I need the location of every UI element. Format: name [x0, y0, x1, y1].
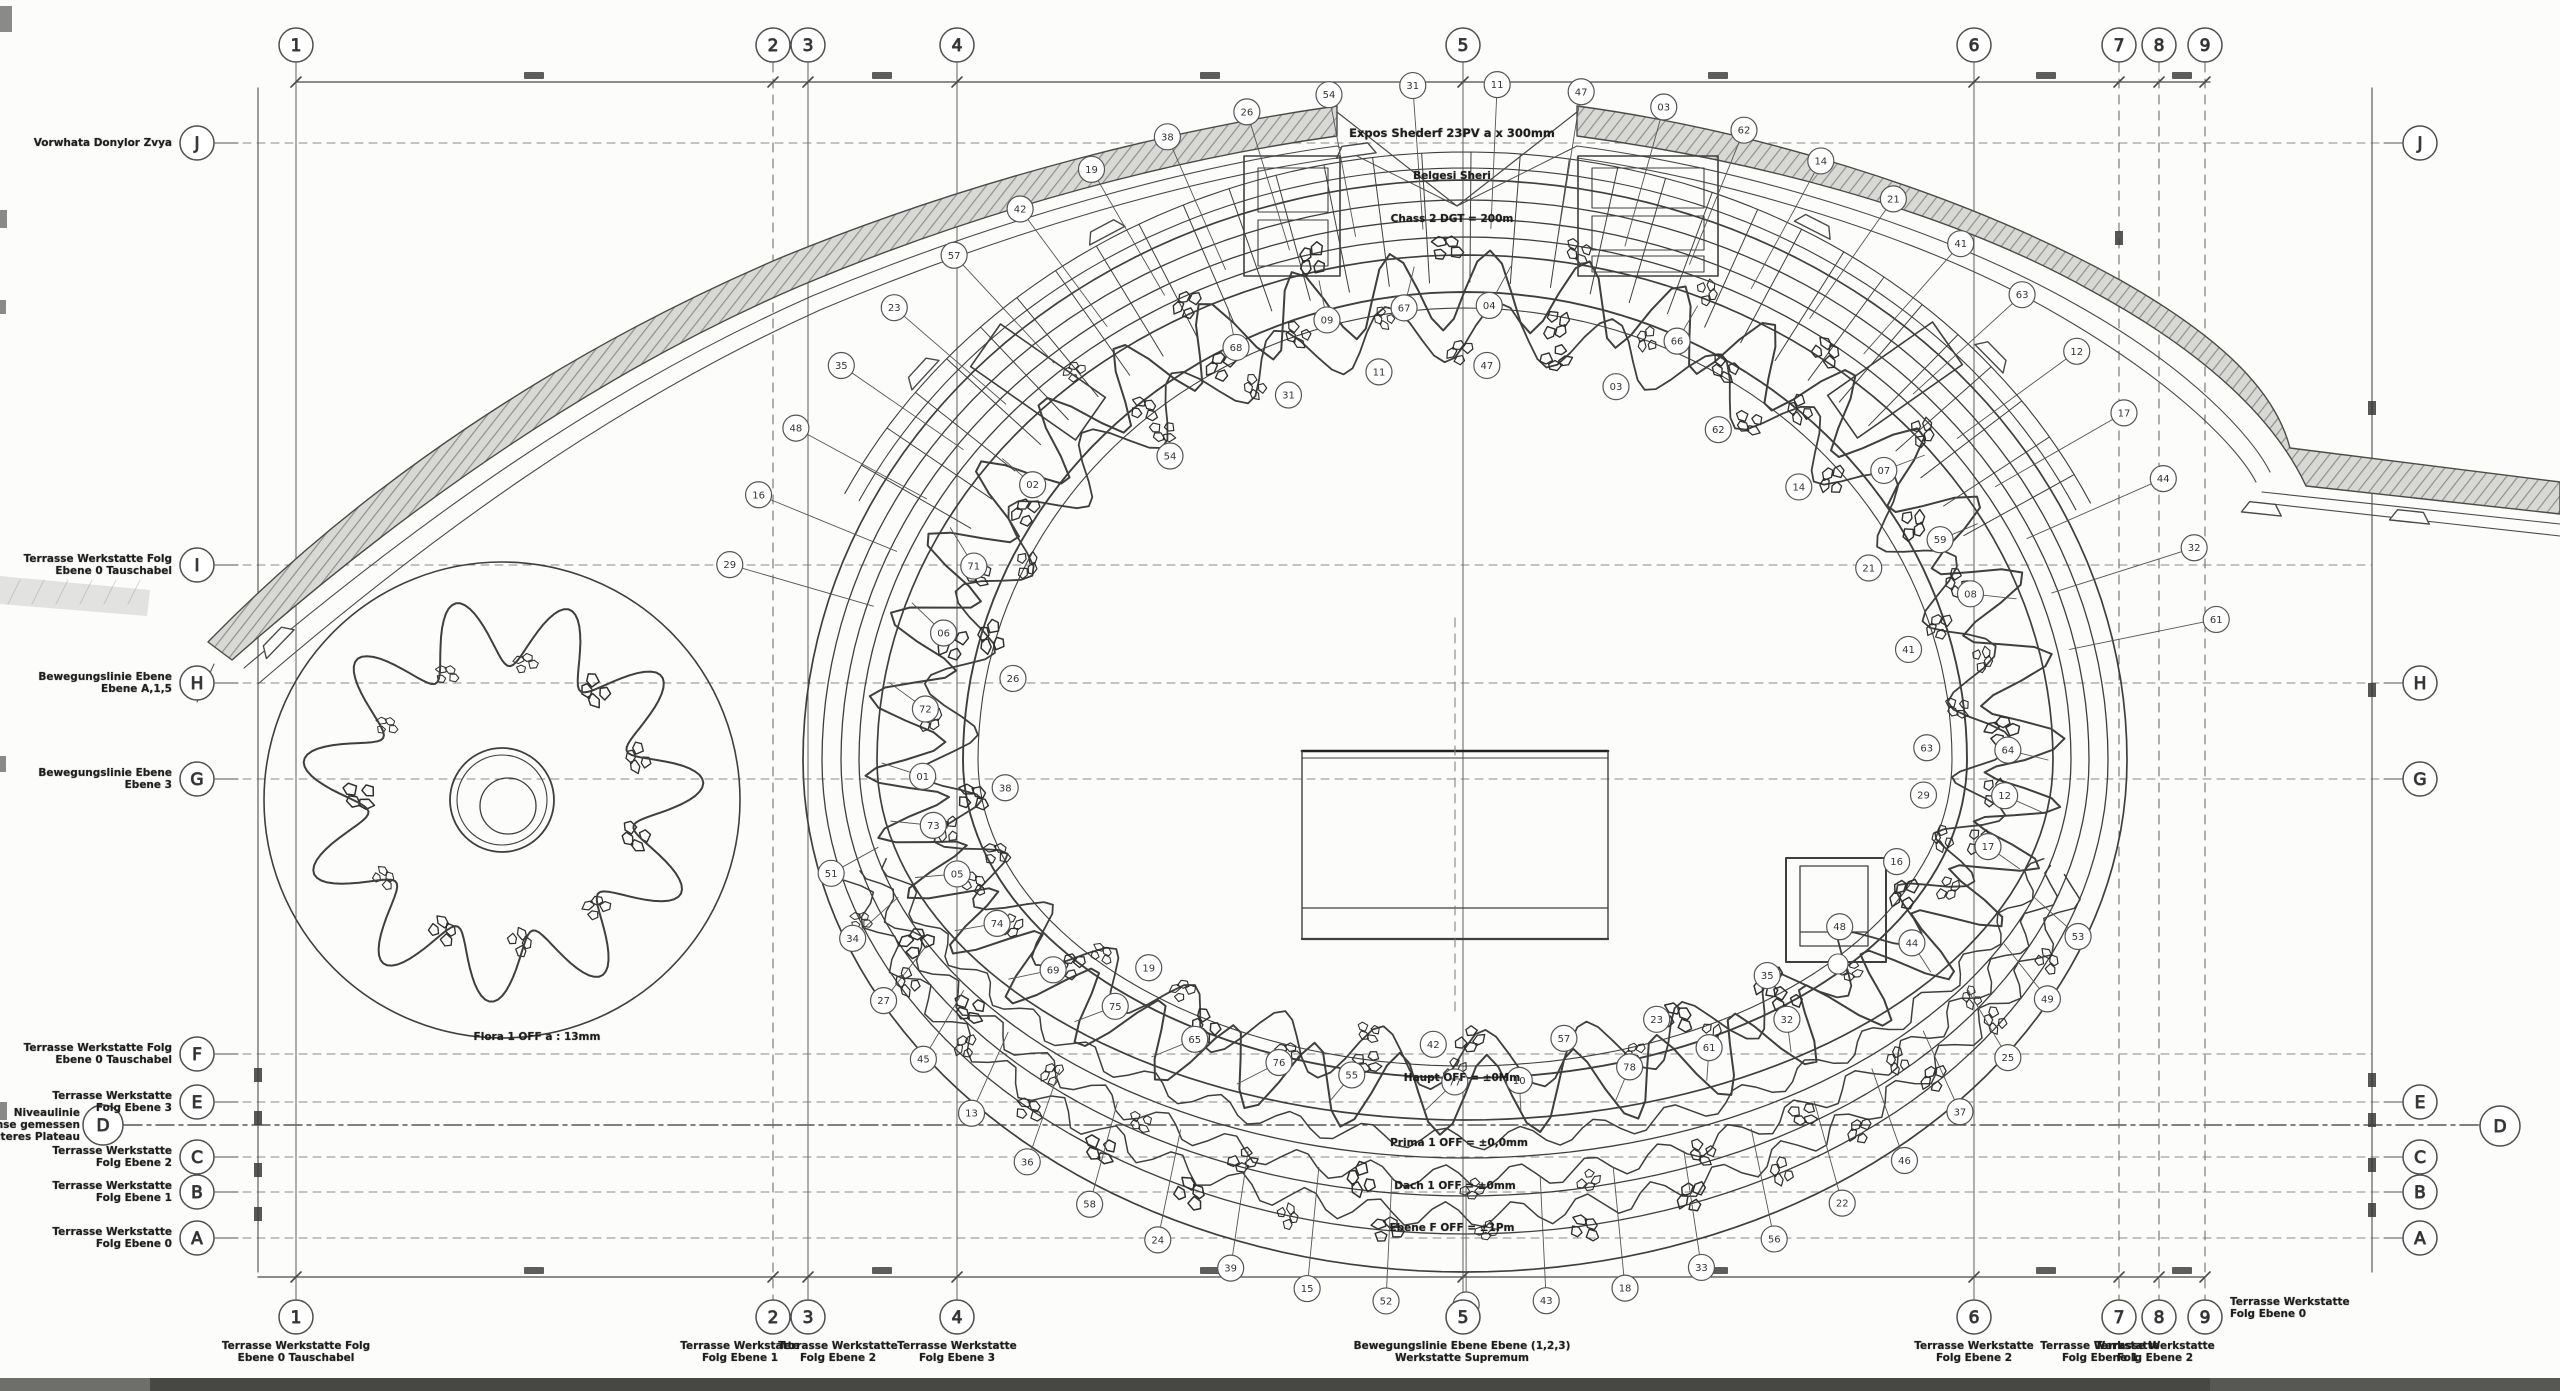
- callout-number: 19: [1085, 165, 1098, 176]
- row-label-C: Terrasse Werkstatte Folg Ebene 2: [52, 1145, 172, 1169]
- canopy-tab: [1335, 142, 1376, 158]
- radial-divider: [1896, 367, 1991, 451]
- callout-number: 61: [2210, 615, 2223, 626]
- callout-number: 58: [1083, 1200, 1096, 1211]
- dimension-text-smudge: [1200, 72, 1220, 79]
- callout-number: 41: [1902, 645, 1915, 656]
- callout-leader: [1307, 1167, 1319, 1288]
- tree-sketch: [1983, 1006, 2008, 1036]
- row-label-B: Terrasse Werkstatte Folg Ebene 1: [52, 1180, 172, 1204]
- top-annotation-2: Belgesi Sheri: [1413, 170, 1491, 182]
- dimension-text-smudge: [872, 72, 892, 79]
- tree-sketch: [1241, 371, 1269, 402]
- tree-sketch: [431, 660, 462, 689]
- callout-number: 56: [1768, 1234, 1781, 1245]
- callout-number: 03: [1610, 382, 1623, 393]
- grid-bubble-label-3: 3: [803, 1308, 814, 1328]
- callout-number: 62: [1712, 425, 1725, 436]
- callout-leader: [1231, 1152, 1248, 1269]
- callout-number: 46: [1898, 1156, 1911, 1167]
- callout-number: 24: [1151, 1235, 1164, 1246]
- grid-bubble-label-G: G: [190, 770, 203, 790]
- scan-footer-segment: [0, 1378, 150, 1391]
- callout-number: 22: [1836, 1199, 1849, 1210]
- tree-sketch: [579, 671, 612, 710]
- tree-sketch: [948, 986, 992, 1031]
- column-footnote-3: Terrasse Werkstatte Folg Ebene 2: [778, 1340, 898, 1364]
- callout-bubble: [1828, 954, 1848, 974]
- tree-sketch: [1535, 304, 1577, 346]
- dimension-text-smudge: [1200, 1267, 1220, 1274]
- callout-number: 23: [888, 303, 901, 314]
- callout-number: 54: [1164, 452, 1177, 463]
- callout-number: 71: [967, 562, 980, 573]
- scan-footer-band: [0, 1378, 2560, 1391]
- tree-sketch: [1941, 690, 1975, 724]
- callout-number: 21: [1887, 194, 1900, 205]
- callout-number: 55: [1345, 1070, 1358, 1081]
- canopy-tab: [1975, 337, 2011, 373]
- callout-number: 44: [1906, 938, 1919, 949]
- survey-tick-block: [254, 1207, 262, 1221]
- column-footnote-6: Terrasse Werkstatte Folg Ebene 2: [1914, 1340, 2034, 1364]
- callout-leader: [1158, 1130, 1181, 1240]
- grid-bubble-label-9: 9: [2200, 1308, 2211, 1328]
- callout-leader: [2027, 479, 2163, 539]
- top-annotation-3: Chass 2 DGT = 200m: [1391, 213, 1514, 225]
- callout-leader: [1995, 413, 2124, 487]
- callout-number: 14: [1792, 482, 1805, 493]
- callout-number: 06: [937, 628, 950, 639]
- callout-number: 78: [1623, 1062, 1636, 1073]
- grid-bubble-label-4: 4: [952, 1308, 963, 1328]
- dimension-text-smudge: [1708, 72, 1728, 79]
- survey-tick-block: [254, 1068, 262, 1082]
- dimension-text-smudge: [2172, 72, 2192, 79]
- grid-bubble-label-H: H: [2414, 674, 2427, 694]
- callout-number: 35: [1761, 971, 1774, 982]
- grid-bubble-label-9: 9: [2200, 36, 2211, 56]
- dimension-text-smudge: [872, 1267, 892, 1274]
- footnote-right-of-9: Terrasse Werkstatte Folg Ebene 0: [2230, 1296, 2350, 1320]
- callout-number: 53: [2072, 932, 2085, 943]
- callout-number: 02: [1026, 480, 1039, 491]
- grid-bubble-label-5: 5: [1458, 36, 1469, 56]
- grid-bubble-label-E: E: [192, 1093, 203, 1113]
- callout-number: 61: [1703, 1043, 1716, 1054]
- callout-number: 14: [1814, 156, 1827, 167]
- grid-bubble-label-1: 1: [291, 36, 302, 56]
- tree-sketch: [1345, 1160, 1378, 1199]
- survey-tick-block: [2368, 1203, 2376, 1217]
- tree-sketch: [1769, 1156, 1795, 1187]
- dimension-lines: [258, 72, 2210, 1282]
- survey-tick-block: [2368, 683, 2376, 697]
- row-label-I: Terrasse Werkstatte Folg Ebene 0 Tauscha…: [24, 553, 172, 577]
- plaza-core-ring-inner: [457, 755, 547, 845]
- tree-sketch: [1451, 1023, 1488, 1055]
- grid-bubble-label-D: D: [96, 1116, 109, 1136]
- callout-number: 66: [1671, 337, 1684, 348]
- plaza-scallop-ring: [304, 603, 704, 1001]
- callout-number: 51: [825, 869, 838, 880]
- scan-edge-artifact: [0, 300, 6, 314]
- callout-number: 16: [752, 490, 765, 501]
- callout-number: 67: [1398, 303, 1411, 314]
- tree-sketch: [1930, 872, 1965, 905]
- callout-number: 08: [1964, 589, 1977, 600]
- callout-number: 42: [1014, 204, 1027, 215]
- callout-number: 31: [1406, 81, 1419, 92]
- callout-number: 23: [1650, 1015, 1663, 1026]
- callout-number: 54: [1323, 90, 1336, 101]
- tree-sketch: [1442, 336, 1477, 368]
- callout-leader: [796, 428, 927, 499]
- grid-bubble-label-2: 2: [768, 36, 779, 56]
- radial-divider: [1944, 437, 2050, 506]
- grid-bubble-label-4: 4: [952, 36, 963, 56]
- grid-bubble-label-A: A: [191, 1229, 203, 1249]
- tree-sketch: [1169, 1172, 1209, 1216]
- callout-number: 63: [1920, 743, 1933, 754]
- grid-bubble-label-A: A: [2414, 1229, 2426, 1249]
- radial-divider: [1056, 271, 1130, 376]
- survey-tick-block: [254, 1111, 262, 1125]
- callout-number: 57: [948, 251, 961, 262]
- grid-bubble-label-6: 6: [1969, 1308, 1980, 1328]
- canopy-band-right: [1577, 106, 2560, 514]
- dimension-text-smudge: [2036, 72, 2056, 79]
- inner-bowl-ellipse-inner: [978, 308, 1952, 1066]
- callout-number: 69: [1047, 965, 1060, 976]
- dimension-text-smudge: [524, 72, 544, 79]
- tier-ring: [877, 255, 2053, 1120]
- grid-bubble-label-1: 1: [291, 1308, 302, 1328]
- stadium-site-plan-canvas: 6132441712634121146203471131542638194257…: [0, 0, 2560, 1391]
- grid-bubble-label-7: 7: [2114, 1308, 2125, 1328]
- scan-edge-artifact: [0, 6, 12, 32]
- grid-bubble-label-B: B: [2414, 1183, 2426, 1203]
- row-label-G: Bewegungslinie Ebene Ebene 3: [38, 767, 172, 791]
- level-annotation-3: Dach 1 OFF = ±0mm: [1394, 1180, 1515, 1192]
- dimension-text-smudge: [2172, 1267, 2192, 1274]
- row-label-A: Terrasse Werkstatte Folg Ebene 0: [52, 1226, 172, 1250]
- grid-bubble-label-3: 3: [803, 36, 814, 56]
- grid-bubble-label-2: 2: [768, 1308, 779, 1328]
- callout-number: 34: [846, 934, 859, 945]
- grid-bubble-label-B: B: [191, 1183, 203, 1203]
- callout-leader: [1386, 1177, 1392, 1301]
- callout-number: 52: [1380, 1296, 1393, 1307]
- grid-reference-bubbles: 112233445566778899JJIHHGGFEEDDCCBBAA: [83, 28, 2520, 1334]
- survey-tick-block: [2368, 1113, 2376, 1127]
- callout-number: 09: [1321, 315, 1334, 326]
- callout-leader: [2052, 548, 2194, 593]
- callout-number: 39: [1224, 1264, 1237, 1275]
- level-annotation-2: Prima 1 OFF = ±0,0mm: [1390, 1137, 1528, 1149]
- plaza-core-circle: [480, 778, 536, 834]
- callout-number: 21: [1862, 564, 1875, 575]
- row-label-D: Niveaulinie Regelachse gemessen unteres …: [0, 1107, 80, 1143]
- callout-number: 43: [1540, 1296, 1553, 1307]
- tree-sketch: [1036, 1059, 1069, 1090]
- callout-number: 26: [1007, 674, 1020, 685]
- callout-leader: [1613, 1167, 1625, 1288]
- callout-number: 36: [1021, 1157, 1034, 1168]
- callout-number: 03: [1657, 103, 1670, 114]
- row-label-J: Vorwhata Donylor Zvya: [34, 137, 172, 149]
- callout-number: 75: [1109, 1002, 1122, 1013]
- callout-number: 04: [1483, 301, 1496, 312]
- callout-number: 07: [1877, 466, 1890, 477]
- callout-leader: [759, 495, 897, 551]
- radial-divider: [862, 465, 971, 528]
- round-building-label: Flora 1 OFF a : 13mm: [474, 1031, 601, 1043]
- callout-number: 57: [1558, 1034, 1571, 1045]
- plan-layers: 6132441712634121146203471131542638194257…: [0, 6, 2560, 1334]
- grid-bubble-label-7: 7: [2114, 36, 2125, 56]
- tree-sketch: [507, 927, 532, 957]
- callout-number: 32: [2188, 543, 2201, 554]
- callout-number: 37: [1954, 1107, 1967, 1118]
- callout-number: 38: [999, 783, 1012, 794]
- grid-bubble-label-8: 8: [2154, 1308, 2165, 1328]
- stair-block-right: [1828, 322, 1963, 438]
- grid-bubble-label-J: J: [2416, 134, 2422, 154]
- callout-number: 44: [2157, 474, 2170, 485]
- central-field: [1302, 618, 1886, 1012]
- level-annotation-4: Ebene F OFF = ±1Pm: [1389, 1222, 1514, 1234]
- callout-number: 17: [2118, 408, 2131, 419]
- grid-bubble-label-6: 6: [1969, 36, 1980, 56]
- scallop-ring-inner: [918, 303, 2013, 1089]
- callout-number: 47: [1480, 361, 1493, 372]
- grid-bubble-label-G: G: [2413, 770, 2426, 790]
- tree-sketch: [1564, 1208, 1605, 1249]
- tree-sketch: [616, 815, 655, 857]
- plaza-core-ring: [450, 748, 554, 852]
- tree-sketch: [1921, 609, 1959, 645]
- radial-divider: [1017, 298, 1098, 397]
- callout-number: 65: [1188, 1035, 1201, 1046]
- callout-number: 64: [2002, 746, 2015, 757]
- radial-divider: [1964, 475, 2074, 536]
- radial-divider: [1839, 305, 1922, 402]
- survey-tick-block: [2368, 1158, 2376, 1172]
- canopy-tab: [1084, 217, 1124, 245]
- callout-number: 11: [1373, 367, 1386, 378]
- callout-number: 48: [790, 424, 803, 435]
- callout-number: 29: [723, 560, 736, 571]
- callout-number: 62: [1738, 126, 1751, 137]
- callout-leader: [730, 565, 874, 607]
- callout-number: 27: [877, 996, 890, 1007]
- grid-bubble-label-I: I: [194, 556, 199, 576]
- tree-sketch: [1086, 938, 1116, 969]
- callout-leader: [1957, 351, 2076, 438]
- callout-number: 31: [1282, 390, 1295, 401]
- tree-sketch: [1227, 1147, 1258, 1172]
- callout-number: 38: [1161, 132, 1174, 143]
- column-footnote-5: Bewegungslinie Ebene Ebene (1,2,3) Werks…: [1354, 1340, 1571, 1364]
- scan-footer-segment: [2210, 1378, 2560, 1391]
- row-label-H: Bewegungslinie Ebene Ebene A,1,5: [38, 671, 172, 695]
- callout-number: 26: [1241, 107, 1254, 118]
- level-annotation-1: Haupt OFF = ±0Mm: [1404, 1072, 1520, 1084]
- column-footnote-4: Terrasse Werkstatte Folg Ebene 3: [897, 1340, 1017, 1364]
- survey-tick-block: [254, 1163, 262, 1177]
- callout-number: 47: [1575, 87, 1588, 98]
- callout-number: 12: [2070, 347, 2083, 358]
- callout-number: 17: [1982, 842, 1995, 853]
- callout-number: 59: [1934, 535, 1947, 546]
- column-footnote-1: Terrasse Werkstatte Folg Ebene 0 Tauscha…: [222, 1340, 370, 1364]
- callout-number: 19: [1142, 963, 1155, 974]
- callout-number: 68: [1230, 343, 1243, 354]
- callout-number: 48: [1833, 922, 1846, 933]
- grid-bubble-label-E: E: [2415, 1093, 2426, 1113]
- canopy-tab: [2389, 509, 2430, 524]
- callout-number: 18: [1619, 1284, 1632, 1295]
- grid-bubble-label-H: H: [191, 674, 204, 694]
- tree-sketch: [895, 967, 920, 998]
- tree-sketch: [1573, 1166, 1604, 1194]
- callout-number: 16: [1890, 857, 1903, 868]
- callout-number: 76: [1273, 1058, 1286, 1069]
- round-plaza: [264, 562, 740, 1038]
- callout-number: 15: [1301, 1284, 1314, 1295]
- canopy-edge-band: [244, 146, 1337, 668]
- callout-leader: [1913, 295, 2022, 394]
- survey-tick-block: [2368, 1073, 2376, 1087]
- callout-number: 42: [1427, 1040, 1440, 1051]
- plaza-outer-circle: [264, 562, 740, 1038]
- callout-number: 13: [965, 1109, 978, 1120]
- grid-bubble-label-C: C: [191, 1148, 203, 1168]
- canopy-tab: [1794, 211, 1835, 239]
- grid-bubble-label-8: 8: [2154, 36, 2165, 56]
- tree-sketch: [1060, 360, 1088, 385]
- callout-leader: [1491, 85, 1497, 229]
- callout-leader: [1810, 199, 1894, 319]
- dimension-text-smudge: [2036, 1267, 2056, 1274]
- callout-leader: [1872, 1069, 1905, 1161]
- tree-sketch: [369, 863, 397, 894]
- callout-number: 72: [919, 705, 932, 716]
- scan-edge-artifact: [0, 210, 7, 228]
- row-label-F: Terrasse Werkstatte Folg Ebene 0 Tauscha…: [24, 1042, 172, 1066]
- callout-leader: [1020, 209, 1107, 326]
- radial-divider: [915, 392, 1015, 471]
- blueprint-page: 6132441712634121146203471131542638194257…: [0, 0, 2560, 1391]
- tree-sketch: [897, 927, 936, 959]
- callout-leader: [954, 255, 1054, 363]
- survey-tick-block: [2368, 401, 2376, 415]
- callout-number: 35: [835, 361, 848, 372]
- callout-number: 05: [951, 869, 964, 880]
- tree-sketch: [1426, 229, 1468, 268]
- radial-divider: [1921, 401, 2022, 478]
- callout-number: 12: [1998, 791, 2011, 802]
- column-footnote-8: Terrasse Werkstatte Folg Ebene 2: [2095, 1340, 2215, 1364]
- callout-number: 29: [1917, 791, 1930, 802]
- callout-number: 45: [917, 1055, 930, 1066]
- callout-number: 49: [2041, 994, 2054, 1005]
- callout-number: 11: [1491, 80, 1504, 91]
- callout-number: 25: [2001, 1053, 2014, 1064]
- canopy-tab: [2241, 501, 2282, 516]
- callout-leader: [1864, 244, 1961, 354]
- dimension-text-smudge: [524, 1267, 544, 1274]
- scan-edge-artifact: [0, 756, 6, 772]
- grid-bubble-label-F: F: [192, 1045, 202, 1065]
- callout-number: 74: [991, 919, 1004, 930]
- grid-bubble-label-J: J: [193, 134, 199, 154]
- callout-number: 63: [2016, 290, 2029, 301]
- top-annotation-1: Expos Shederf 23PV a x 300mm: [1349, 127, 1555, 139]
- callout-leader: [1540, 1177, 1546, 1301]
- callout-number: 73: [927, 821, 940, 832]
- grid-bubble-label-C: C: [2414, 1148, 2426, 1168]
- callout-number: 01: [916, 772, 929, 783]
- radial-divider: [1096, 246, 1163, 356]
- callout-number: 41: [1954, 239, 1967, 250]
- ghost-canopy-strip: [0, 576, 150, 616]
- grid-bubble-label-5: 5: [1458, 1308, 1469, 1328]
- callout-leader: [1751, 1129, 1774, 1239]
- stadium-tier-rings: [803, 152, 2127, 1272]
- survey-tick-block: [2115, 231, 2123, 245]
- callout-leader: [841, 366, 963, 450]
- callout-number: 32: [1781, 1015, 1794, 1026]
- callout-markers: 6132441712634121146203471131542638194257…: [717, 72, 2229, 1318]
- callout-number: 33: [1695, 1263, 1708, 1274]
- grid-bubble-label-D: D: [2493, 1117, 2506, 1137]
